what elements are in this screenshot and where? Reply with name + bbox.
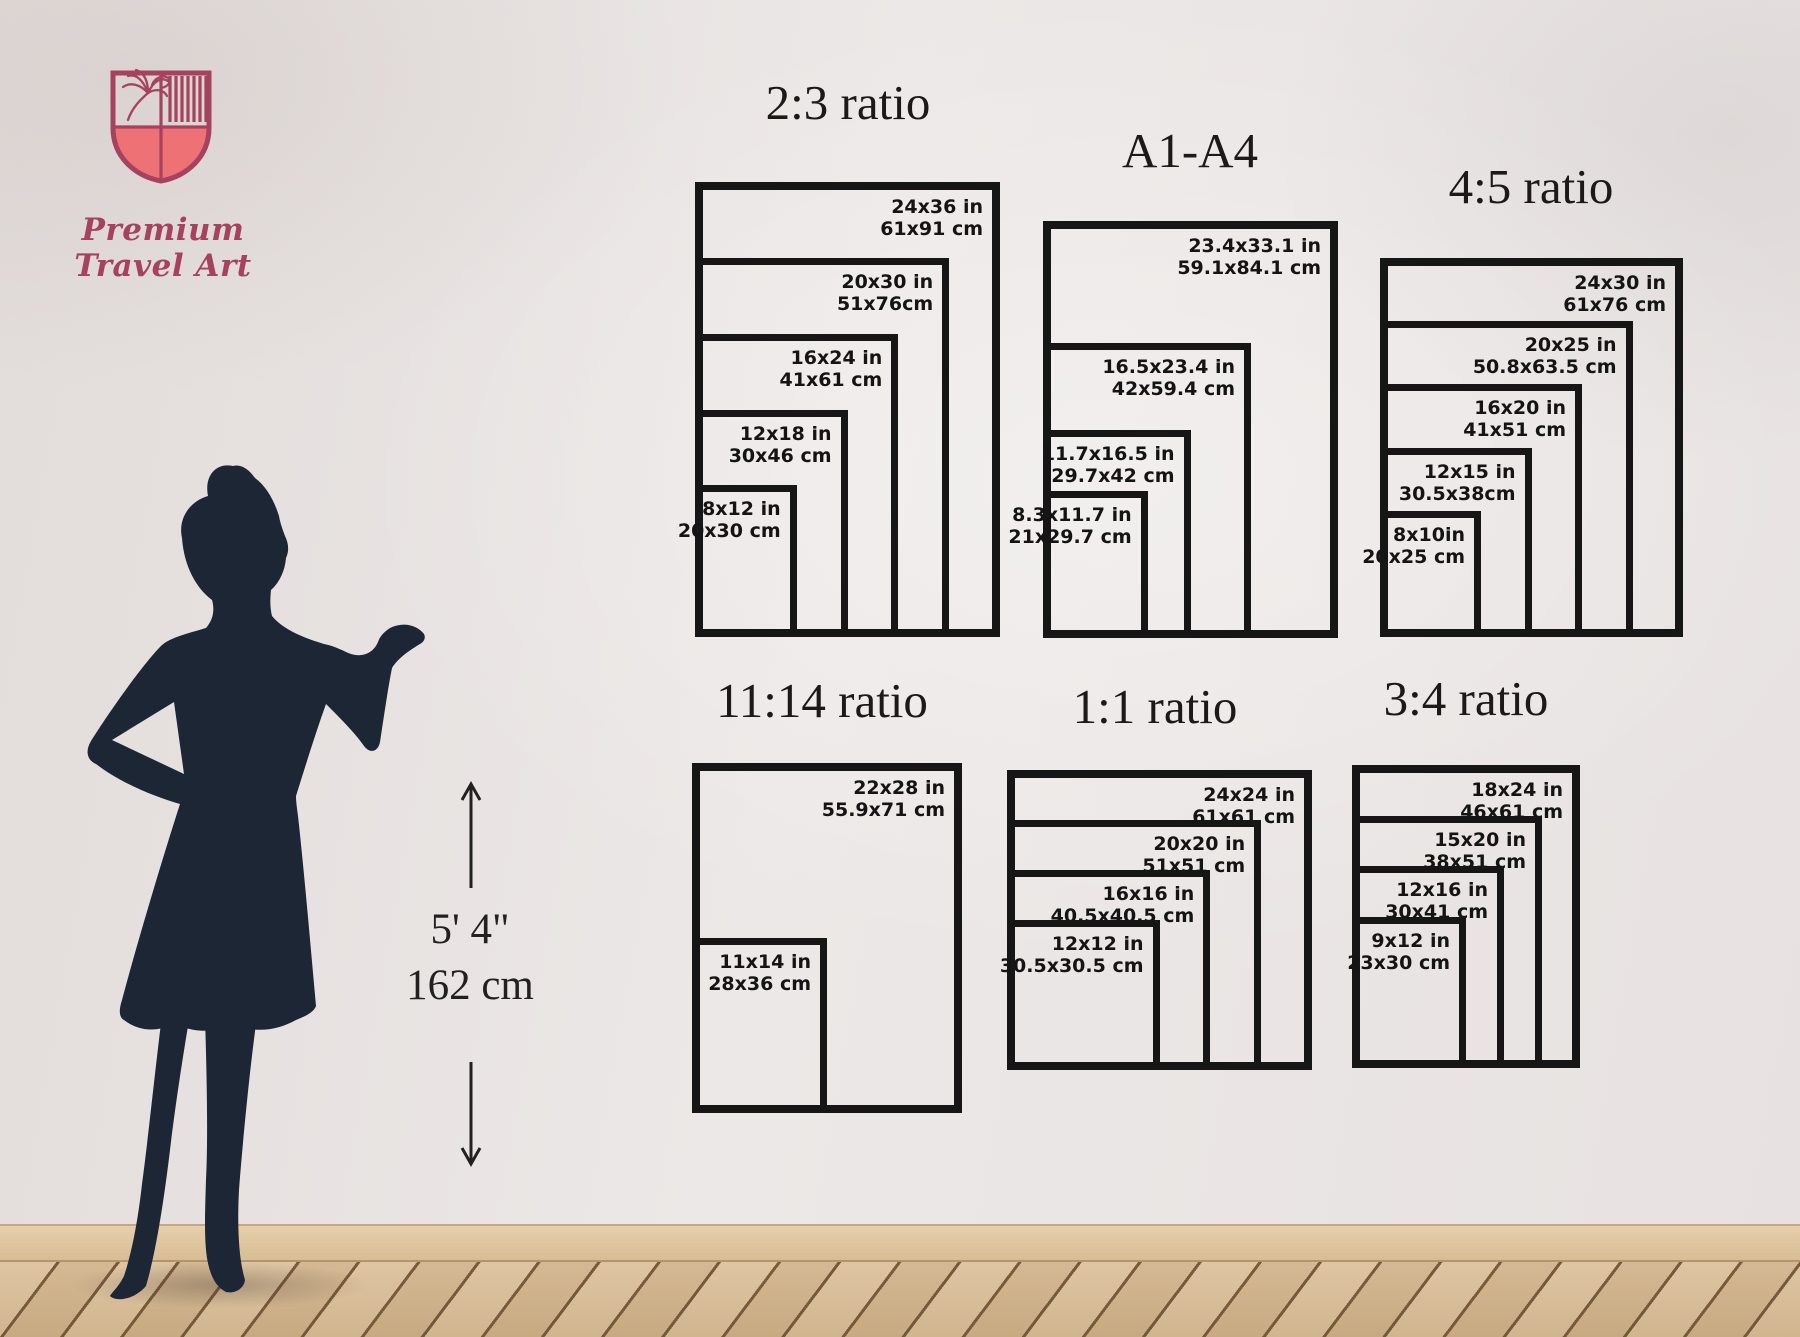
size-inches: 23.4x33.1 in — [1177, 235, 1321, 257]
size-guide-poster: Premium Travel Art 5' 4" 162 cm 2:3 rati… — [0, 0, 1800, 1337]
group-title-ratio-3-4: 3:4 ratio — [1384, 670, 1549, 727]
size-label: 24x36 in61x91 cm — [880, 196, 983, 240]
size-label: 8x12 in20x30 cm — [678, 498, 781, 542]
size-cm: 23x30 cm — [1347, 952, 1450, 974]
size-cm: 20x30 cm — [678, 520, 781, 542]
size-inches: 22x28 in — [822, 777, 945, 799]
size-label: 8.3x11.7 in21x29.7 cm — [1008, 504, 1131, 548]
size-label: 16.5x23.4 in42x59.4 cm — [1102, 356, 1235, 400]
size-cm: 41x51 cm — [1463, 419, 1566, 441]
size-cm: 50.8x63.5 cm — [1473, 356, 1617, 378]
size-cm: 28x36 cm — [708, 973, 811, 995]
size-frame: 8x12 in20x30 cm — [695, 485, 797, 637]
size-label: 12x12 in30.5x30.5 cm — [1000, 933, 1144, 977]
size-label: 16x24 in41x61 cm — [780, 347, 883, 391]
size-inches: 20x20 in — [1142, 833, 1245, 855]
size-label: 12x15 in30.5x38cm — [1399, 461, 1516, 505]
size-inches: 16x16 in — [1051, 883, 1195, 905]
size-inches: 24x36 in — [880, 196, 983, 218]
brand-name: Premium Travel Art — [28, 212, 298, 284]
size-frame: 9x12 in23x30 cm — [1352, 917, 1466, 1069]
brand-shield-icon — [96, 62, 226, 192]
size-label: 22x28 in55.9x71 cm — [822, 777, 945, 821]
size-cm: 21x29.7 cm — [1008, 526, 1131, 548]
size-inches: 8x10in — [1362, 524, 1465, 546]
size-label: 9x12 in23x30 cm — [1347, 930, 1450, 974]
group-title-ratio-4-5: 4:5 ratio — [1449, 158, 1614, 215]
size-cm: 20x25 cm — [1362, 546, 1465, 568]
size-cm: 30.5x38cm — [1399, 483, 1516, 505]
size-label: 20x25 in50.8x63.5 cm — [1473, 334, 1617, 378]
size-inches: 12x18 in — [729, 423, 832, 445]
size-cm: 30x46 cm — [729, 445, 832, 467]
size-frame: 11x14 in28x36 cm — [692, 938, 827, 1113]
size-frame: 8x10in20x25 cm — [1380, 511, 1481, 637]
size-label: 23.4x33.1 in59.1x84.1 cm — [1177, 235, 1321, 279]
size-frame: 12x12 in30.5x30.5 cm — [1007, 920, 1160, 1070]
size-cm: 59.1x84.1 cm — [1177, 257, 1321, 279]
size-cm: 51x76cm — [837, 293, 933, 315]
size-cm: 55.9x71 cm — [822, 799, 945, 821]
size-label: 24x30 in61x76 cm — [1563, 272, 1666, 316]
height-imperial: 5' 4" — [360, 902, 580, 958]
size-label: 20x30 in51x76cm — [837, 271, 933, 315]
group-title-ratio-2-3: 2:3 ratio — [766, 74, 931, 131]
size-frame: 8.3x11.7 in21x29.7 cm — [1043, 491, 1148, 638]
size-inches: 20x25 in — [1473, 334, 1617, 356]
size-inches: 20x30 in — [837, 271, 933, 293]
size-inches: 16x24 in — [780, 347, 883, 369]
size-inches: 16x20 in — [1463, 397, 1566, 419]
group-title-ratio-a1-a4: A1-A4 — [1122, 122, 1258, 179]
up-arrow-icon — [458, 780, 484, 892]
group-title-ratio-1-1: 1:1 ratio — [1073, 678, 1238, 735]
size-cm: 30.5x30.5 cm — [1000, 955, 1144, 977]
size-inches: 9x12 in — [1347, 930, 1450, 952]
size-inches: 11.7x16.5 in — [1042, 443, 1175, 465]
size-inches: 11x14 in — [708, 951, 811, 973]
size-cm: 29.7x42 cm — [1042, 465, 1175, 487]
down-arrow-icon — [458, 1058, 484, 1170]
size-label: 8x10in20x25 cm — [1362, 524, 1465, 568]
size-cm: 61x91 cm — [880, 218, 983, 240]
size-cm: 42x59.4 cm — [1102, 378, 1235, 400]
size-inches: 12x16 in — [1385, 879, 1488, 901]
size-inches: 12x12 in — [1000, 933, 1144, 955]
size-label: 11.7x16.5 in29.7x42 cm — [1042, 443, 1175, 487]
size-inches: 18x24 in — [1460, 779, 1563, 801]
height-metric: 162 cm — [360, 958, 580, 1014]
size-inches: 24x30 in — [1563, 272, 1666, 294]
size-inches: 24x24 in — [1192, 784, 1295, 806]
size-label: 11x14 in28x36 cm — [708, 951, 811, 995]
size-inches: 16.5x23.4 in — [1102, 356, 1235, 378]
size-label: 12x18 in30x46 cm — [729, 423, 832, 467]
model-height: 5' 4" 162 cm — [360, 902, 580, 1014]
woman-silhouette — [58, 440, 428, 1320]
size-inches: 12x15 in — [1399, 461, 1516, 483]
group-title-ratio-11-14: 11:14 ratio — [716, 672, 928, 729]
size-inches: 15x20 in — [1423, 829, 1526, 851]
size-label: 16x20 in41x51 cm — [1463, 397, 1566, 441]
size-inches: 8.3x11.7 in — [1008, 504, 1131, 526]
size-inches: 8x12 in — [678, 498, 781, 520]
size-cm: 61x76 cm — [1563, 294, 1666, 316]
size-cm: 41x61 cm — [780, 369, 883, 391]
